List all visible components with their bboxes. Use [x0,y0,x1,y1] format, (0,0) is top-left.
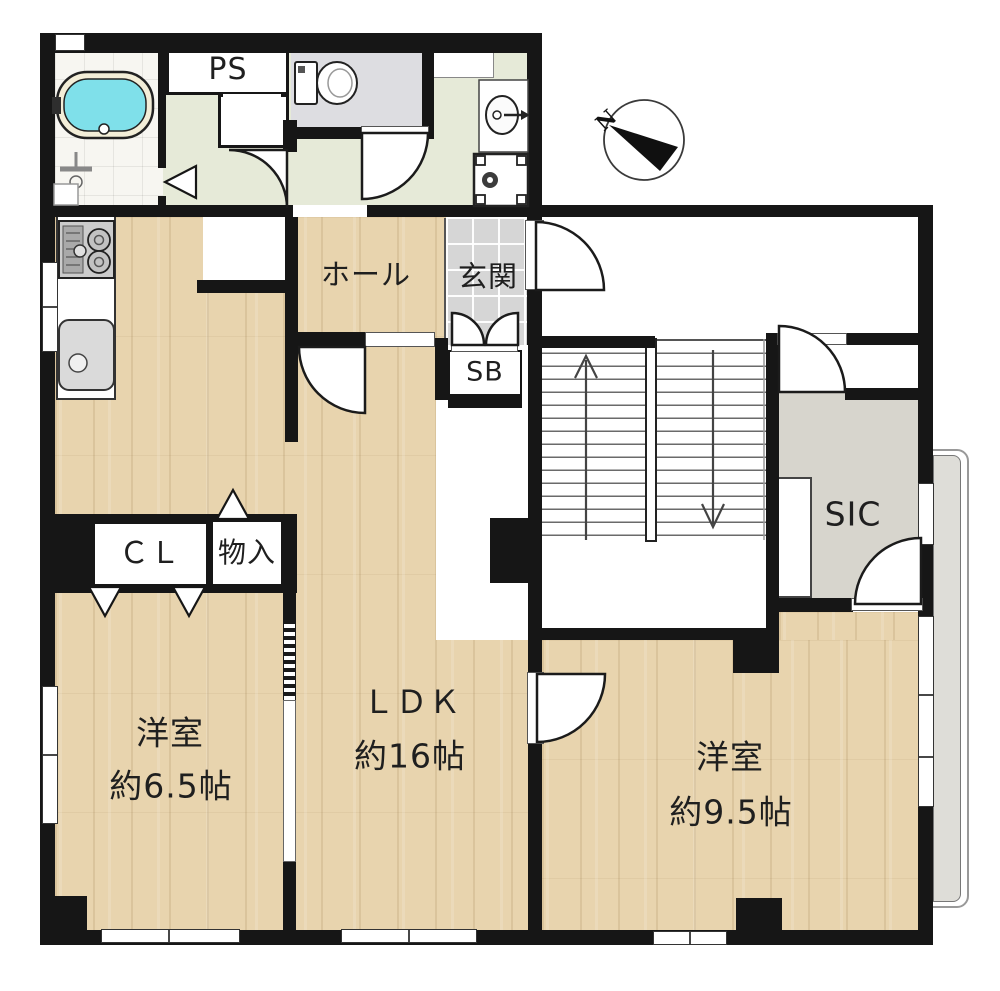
label-entrance: 玄関 [458,263,518,292]
label-hall: ホール [321,261,411,290]
wall [528,205,933,217]
shoe-box-door-sill [451,341,518,352]
stair-door-sill [777,333,847,345]
label-sic: SIC [825,498,882,531]
wall-pillar [736,898,782,945]
wall [847,333,918,345]
floor-bedroom-right [542,640,918,930]
label-ldk-size: 約16帖 [354,740,466,773]
bedroom-right-bottom-window [653,931,727,945]
bathroom-window [55,34,85,51]
front-door-swing [536,222,604,290]
kitchen-window [42,262,58,352]
bedroom-right-door-sill [527,672,544,744]
bedroom-right-side-window [918,616,934,807]
sliding-door-panel [283,620,296,700]
wall [40,33,542,53]
floor-bathroom [55,50,166,210]
label-ldk-name: ＬＤＫ [362,686,461,718]
wall [288,332,370,347]
wall [766,333,779,640]
label-bedroom-left-size: 約6.5帖 [109,770,232,803]
ldk-bottom-window [341,929,477,943]
north-compass: N [590,100,684,180]
refrigerator-niche [203,217,285,280]
floor-bedroom-right-upper [779,612,918,640]
bedroom-left-side-window [42,686,58,824]
label-bedroom-right-name: 洋室 [696,741,764,774]
sliding-door-opening [283,700,296,862]
bedroom-left-bottom-window [101,929,240,943]
wall [158,53,166,168]
pipe-space-box-lower [218,94,289,148]
label-closet: ＣＬ [119,539,181,569]
balcony [933,455,961,902]
wall-pillar [490,518,530,583]
entrance-step-line [444,218,446,338]
wall [527,33,542,222]
wall [291,127,362,139]
wall [528,742,542,932]
partition-wall-top [283,593,296,620]
label-shoe-box: SB [466,359,504,386]
washroom-cabinet [426,52,494,78]
hall-corridor-opening [293,205,367,217]
staircase-stringer [645,338,657,542]
front-door-sill [525,220,544,290]
wall [918,205,933,945]
kitchen-counter [56,212,116,400]
wall-pillar [733,628,779,673]
label-bedroom-right-size: 約9.5帖 [669,796,792,829]
label-pipe-space: PS [208,55,247,85]
wall [158,196,166,210]
toilet-door-sill [361,126,429,139]
wall [778,598,853,612]
wall [845,388,918,400]
floor-plan-canvas: N [0,0,1000,991]
wall [197,280,292,293]
wall [367,205,530,217]
wall [435,338,448,400]
wall [527,288,542,345]
wall [285,217,298,442]
sic-window [918,483,934,545]
wall [528,640,542,674]
wall [528,345,542,640]
sic-door-sill [851,598,923,611]
floor-toilet [291,53,422,133]
label-bedroom-left-name: 洋室 [136,717,204,750]
wall [448,396,522,408]
sic-walkway [778,477,812,598]
wall [40,205,293,217]
wall [542,336,655,348]
partition-wall-bottom [283,862,296,932]
pipe-space-joint [223,94,281,102]
wall-corner-block [40,896,87,945]
compass-north-label: N [590,104,621,135]
hall-ldk-door-sill [365,332,435,347]
label-storage: 物入 [218,539,276,567]
